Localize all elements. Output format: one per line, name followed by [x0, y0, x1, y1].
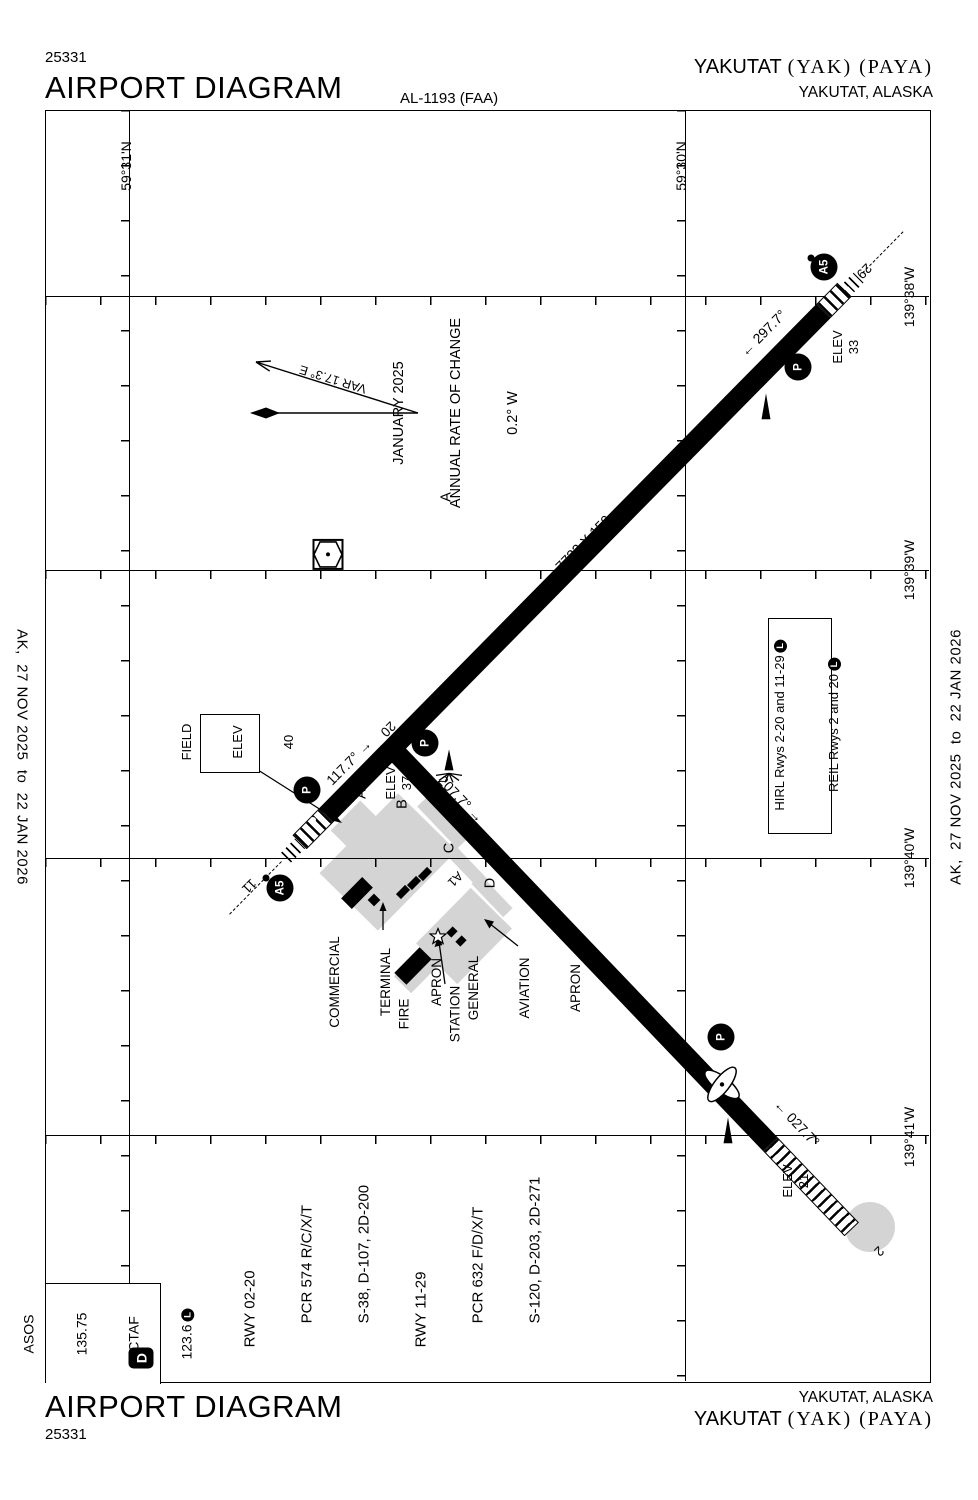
comms-text: ASOS 135.75 CTAF 123.6L: [0, 1308, 213, 1359]
airport-name-header: YAKUTAT(YAK) (PAYA): [694, 56, 933, 79]
lon-label-139-40: 139°40'W: [901, 828, 917, 888]
taxiway-c-label: C: [442, 843, 459, 853]
page-title: AIRPORT DIAGRAM: [45, 70, 342, 106]
taxiway-a-label: A: [354, 789, 371, 799]
p-badge: P: [785, 354, 812, 381]
magnetic-north-arrowhead-icon: [256, 362, 270, 371]
rwy2-elevation: ELEV21: [748, 1164, 828, 1197]
city-footer: YAKUTAT, ALASKA: [799, 1389, 933, 1407]
effective-dates-right: AK, 27 NOV 2025 to 22 JAN 2026: [947, 629, 964, 885]
rwy29-elevation: ELEV33: [798, 330, 878, 363]
gridline-lon-139-41: [45, 1135, 929, 1144]
city-header: YAKUTAT, ALASKA: [799, 84, 933, 102]
hold-sign-a5-badge: A5: [267, 875, 294, 902]
pilot-controlled-lighting-icon: L: [828, 658, 841, 671]
class-d-airspace-badge: D: [129, 1348, 154, 1369]
field-elev-text: FIELD ELEV 40: [144, 724, 314, 761]
p-badge: P: [412, 730, 439, 757]
lighting-info-text: HIRL Rwys 2-20 and 11-29L REIL Rwys 2 an…: [735, 639, 861, 810]
pilot-controlled-lighting-icon: L: [181, 1308, 194, 1321]
true-north-arrowhead-icon: [250, 408, 280, 419]
p-badge: P: [708, 1024, 735, 1051]
effective-dates-left: AK, 27 NOV 2025 to 22 JAN 2026: [13, 629, 30, 885]
gridline-lon-139-38: [45, 296, 929, 305]
page-title-footer: AIRPORT DIAGRAM: [45, 1389, 342, 1425]
p-badge: P: [294, 777, 321, 804]
windsock-icon: [759, 356, 773, 437]
taxiway-a-label-2: A: [439, 492, 456, 502]
pilot-controlled-lighting-icon: L: [774, 639, 787, 652]
lon-label-139-38: 139°38'W: [901, 267, 917, 327]
lat-label-59-30: 59°30'N: [673, 141, 689, 191]
procedure-id: AL-1193 (FAA): [400, 90, 498, 107]
airport-ids: (YAK) (PAYA): [788, 56, 933, 78]
gridline-lon-139-39: [45, 570, 929, 579]
airport-ids: (YAK) (PAYA): [788, 1408, 933, 1430]
gridline-lat-59-31: [121, 110, 130, 1283]
airport-name-footer: YAKUTAT(YAK) (PAYA): [694, 1408, 933, 1431]
variation-rate-label: JANUARY 2025 ANNUAL RATE OF CHANGE 0.2° …: [352, 318, 542, 508]
vor-symbol-icon: [312, 501, 344, 588]
lat-label-59-31: 59°31'N: [118, 141, 134, 191]
ga-apron-label: GENERAL AVIATION APRON: [431, 956, 601, 1021]
hold-sign-a5-badge: A5: [811, 254, 838, 281]
chart-code-bottom: 25331: [45, 1426, 87, 1443]
taxiway-d-label: D: [483, 878, 500, 888]
chart-code-top: 25331: [45, 49, 87, 66]
runway-data-block: RWY 02-20 PCR 574 R/C/X/T S-38, D-107, 2…: [203, 1177, 564, 1348]
lon-label-139-39: 139°39'W: [901, 540, 917, 600]
threshold-point: [310, 817, 316, 823]
taxiway-b-label: B: [395, 799, 412, 809]
lon-label-139-41: 139°41'W: [901, 1107, 917, 1167]
